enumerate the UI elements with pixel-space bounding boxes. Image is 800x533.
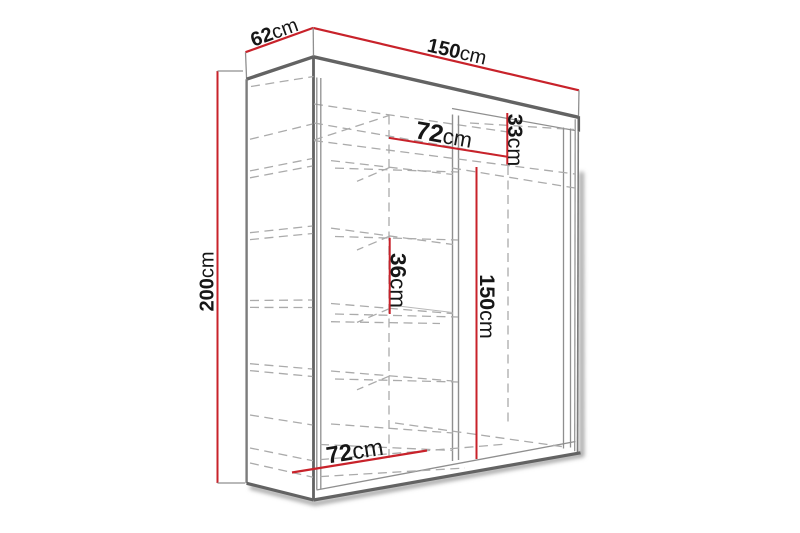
svg-text:200cm: 200cm: [197, 251, 219, 311]
svg-text:33cm: 33cm: [503, 114, 527, 167]
svg-text:36cm: 36cm: [386, 253, 411, 308]
svg-text:150cm: 150cm: [475, 274, 499, 339]
